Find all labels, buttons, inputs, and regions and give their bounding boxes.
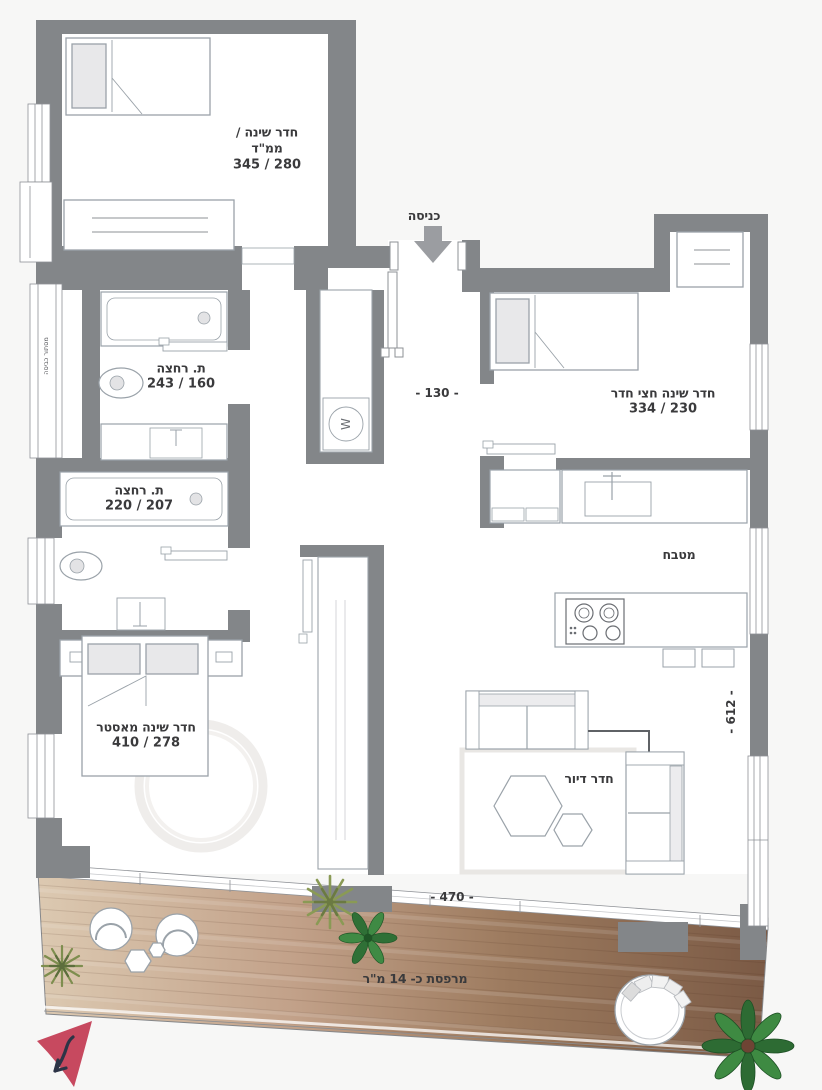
laundry-label: מסתור כביסה: [42, 337, 50, 375]
bedroom-half-dims: 230 / 334: [611, 402, 716, 419]
living-label: חדר דיור: [564, 771, 613, 787]
washer-label: W: [339, 418, 353, 430]
floorplan-canvas: W: [0, 0, 822, 1090]
balcony-label: מרפסת כ- 14 מ"ר: [363, 971, 468, 987]
balcony-name: מרפסת כ- 14 מ"ר: [363, 971, 468, 987]
master-label: חדר שינה מאסטר 278 / 410: [96, 719, 195, 752]
plant-balcony-right: [702, 1000, 794, 1090]
bathroom-bottom-label: ת. רחצה 207 / 220: [105, 482, 173, 515]
bedroom-mamad-dims: 280 / 345: [233, 157, 301, 174]
dimension-balcony: - 470 -: [430, 890, 473, 904]
dimension-right-side: - 612 -: [724, 690, 738, 733]
entrance-text: כניסה: [408, 208, 441, 224]
bedroom-mamad-name-line1: חדר שינה /: [233, 124, 301, 140]
living-name: חדר דיור: [564, 771, 613, 787]
entrance-label: כניסה: [408, 208, 441, 224]
north-arrow: [37, 1021, 92, 1087]
bedroom-half-label: חדר שינה חצי חדר 230 / 334: [611, 385, 716, 418]
bedroom-mamad-label: חדר שינה / ממ"ד 280 / 345: [233, 124, 301, 173]
master-dims: 278 / 410: [96, 736, 195, 753]
bathroom-top-name: ת. רחצה: [147, 360, 215, 376]
kitchen-label: מטבח: [663, 547, 696, 563]
bedroom-mamad-name-line2: ממ"ד: [233, 141, 301, 157]
bathroom-top-dims: 160 / 243: [147, 377, 215, 394]
dimension-entry: - 130 -: [415, 386, 458, 400]
master-name: חדר שינה מאסטר: [96, 719, 195, 735]
floorplan-graphic: W: [0, 0, 822, 1090]
bathroom-bottom-dims: 207 / 220: [105, 499, 173, 516]
bathroom-bottom-name: ת. רחצה: [105, 482, 173, 498]
kitchen-name: מטבח: [663, 547, 696, 563]
bathroom-top-label: ת. רחצה 160 / 243: [147, 360, 215, 393]
bedroom-half-name: חדר שינה חצי חדר: [611, 385, 716, 401]
